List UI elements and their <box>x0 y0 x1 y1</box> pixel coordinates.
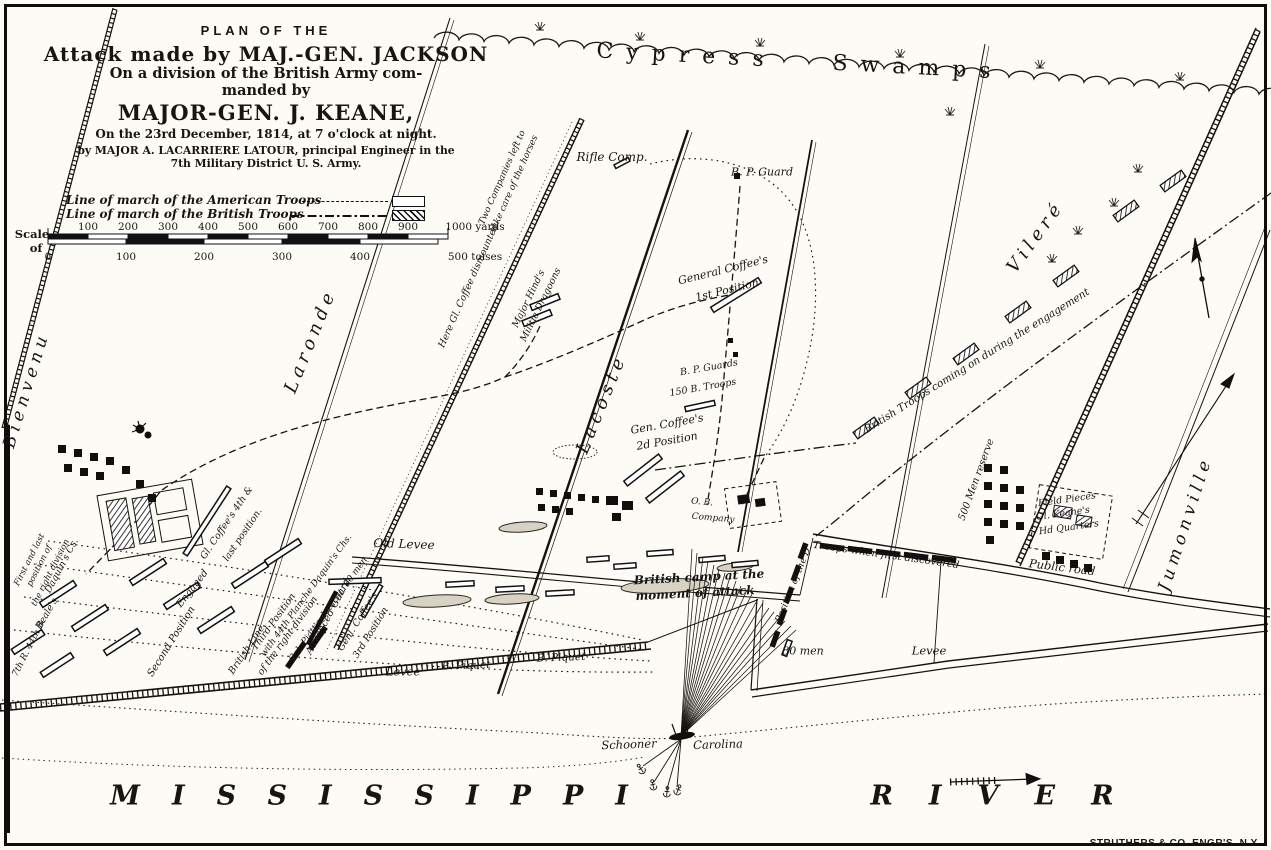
legend-british-label: Line of march of the British Troops <box>66 207 304 221</box>
label-levee-left: Levee <box>386 666 421 678</box>
map-sheet: PLAN OF THE Attack made by MAJ.-GEN. JAC… <box>0 0 1271 850</box>
scale-toises-200: 200 <box>194 251 214 263</box>
scale-toises-100: 100 <box>116 251 136 263</box>
scale-yards-500: 500 <box>238 221 258 233</box>
label-levee-right: Levee <box>912 645 947 657</box>
label-old-levee: Old Levee <box>373 537 435 551</box>
title-line1: Attack made by MAJ.-GEN. JACKSON <box>42 43 490 66</box>
scale-yards-200: 200 <box>118 221 138 233</box>
british-march-line-symbol <box>290 215 388 217</box>
label-bp-guard: B. P. Guard <box>731 167 793 178</box>
scale-toises-0: 0 <box>45 251 52 263</box>
title-line6: by MAJOR A. LACARRIERE LATOUR, principal… <box>42 145 490 157</box>
scale-toises-400: 400 <box>350 251 370 263</box>
scale-toises-300: 300 <box>272 251 292 263</box>
label-rifle-comp: Rifle Comp. <box>576 151 647 163</box>
legend-american-label: Line of march of the American Troops <box>66 193 321 207</box>
scale-yards-100: 100 <box>78 221 98 233</box>
map-border-left-thick <box>4 425 10 833</box>
scale-yards-900: 900 <box>398 221 418 233</box>
north-arrow-icon <box>1192 238 1209 318</box>
american-troops-symbol <box>392 196 425 207</box>
title-line5: On the 23rd December, 1814, at 7 o'clock… <box>42 128 490 142</box>
title-line2: On a division of the British Army com- <box>42 66 490 83</box>
label-carolina: Carolina <box>693 738 743 751</box>
scale-yards-800: 800 <box>358 221 378 233</box>
title-line7: 7th Military District U. S. Army. <box>42 158 490 170</box>
lacoste-buildings <box>536 488 633 521</box>
label-b-piquet-1: B. Piquet <box>441 660 490 672</box>
scale-word-1: Scale <box>15 227 49 241</box>
scale-yards-700: 700 <box>318 221 338 233</box>
label-80-men: 80 men <box>782 646 824 657</box>
river-shore <box>2 694 1269 770</box>
title-line4: MAJOR-GEN. J. KEANE, <box>42 101 490 125</box>
american-march-line-symbol <box>302 201 388 202</box>
title-line3: manded by <box>42 83 490 100</box>
scale-yards-600: 600 <box>278 221 298 233</box>
region-mississippi: MISSISSIPPI <box>110 783 660 810</box>
laronde-buildings <box>58 421 156 502</box>
scale-yards-400: 400 <box>198 221 218 233</box>
title-block: PLAN OF THE Attack made by MAJ.-GEN. JAC… <box>42 24 490 170</box>
title-kicker: PLAN OF THE <box>42 24 490 39</box>
label-b-piquet-2: B. Piquet <box>536 652 585 664</box>
region-river: RIVER <box>870 783 1149 810</box>
scale-yards-300: 300 <box>158 221 178 233</box>
british-troops-symbol <box>392 210 425 221</box>
scale-word-2: of <box>30 241 43 255</box>
label-schooner: Schooner <box>601 738 657 751</box>
levee-roads <box>0 534 1270 711</box>
engraver-credit: STRUTHERS & CO. ENGR'S. N.Y. <box>1020 838 1260 849</box>
label-ob-1: O. B. <box>691 498 714 509</box>
